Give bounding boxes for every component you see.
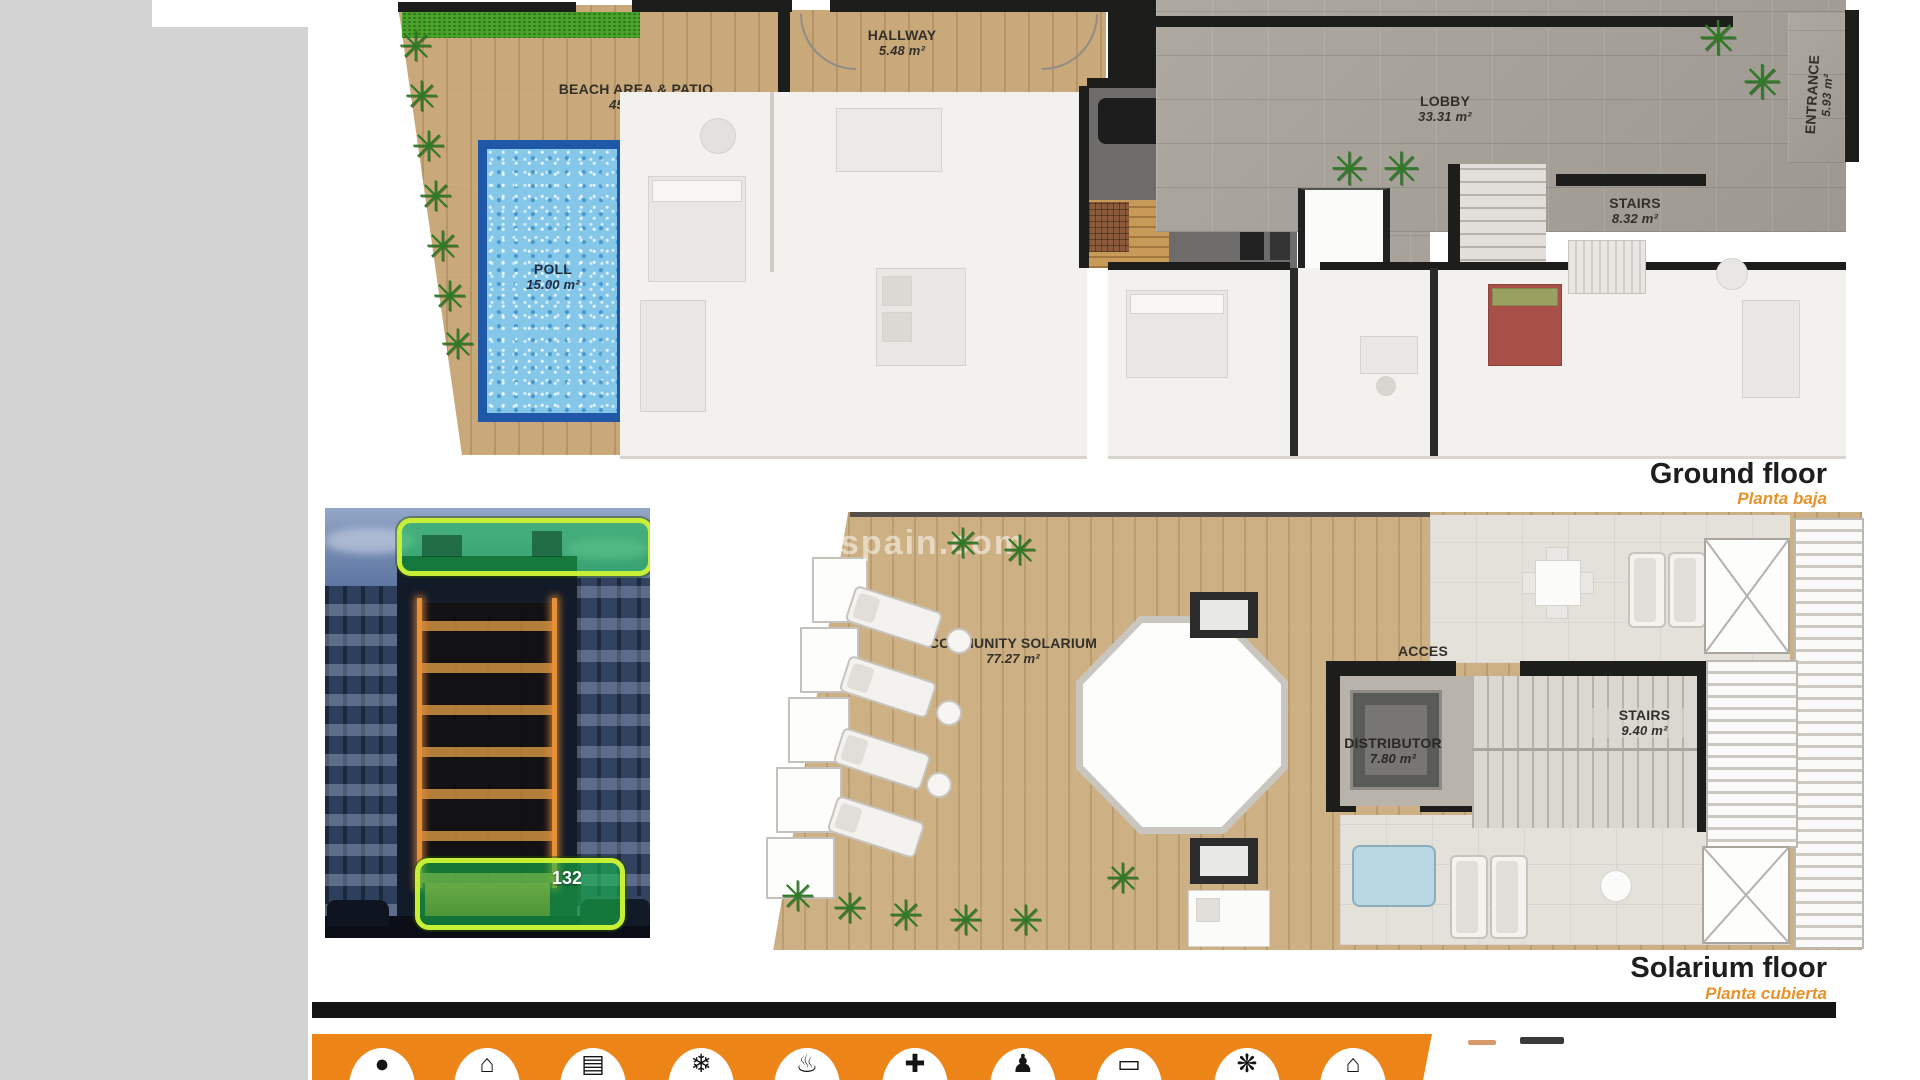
palm-plant-icon: ✳ [948,900,983,942]
palm-plant-icon: ✳ [888,895,923,937]
chair [1546,605,1568,619]
chair [1546,547,1568,561]
sun-lounger [1450,855,1488,939]
dash-mark [1468,1040,1496,1045]
palm-plant-icon: ✳ [1008,900,1043,942]
wall [1520,661,1712,676]
side-table [936,700,962,726]
room-label-acces: ACCES [1388,644,1458,660]
palm-plant-icon: ✳ [1002,530,1037,572]
vent-shaft-cover [1200,846,1248,876]
watermark: spain.com [840,524,1026,563]
table [1535,560,1581,606]
room-label-distributor: DISTRIBUTOR 7.80 m² [1328,736,1458,766]
stair-landing [1472,748,1697,751]
chair [1522,572,1536,594]
chair [1580,572,1594,594]
solarium-floor-plan: spain.com COMMUNITY SOLARIUM 77.27 m² ✳ … [0,0,1920,1080]
wall [1326,661,1456,676]
palm-plant-icon: ✳ [780,876,815,918]
round-table [1600,870,1632,902]
jacuzzi [1352,845,1436,907]
deck-edge [850,512,1430,517]
palm-plant-icon: ✳ [1105,858,1140,900]
page: ✳ ✳ ✳ ✳ ✳ ✳ ✳ BEACH AREA & PATIO 45.74 m… [0,0,1920,1080]
side-table [926,772,952,798]
vent-shaft-cover [1200,600,1248,630]
skylight-icon [1702,846,1790,944]
solarium-floor-title: Solarium floor [1427,952,1827,985]
sun-lounger [1668,552,1706,628]
pergola-slats [1706,660,1798,848]
sink [1196,898,1220,922]
staircase [1472,676,1697,828]
palm-plant-icon: ✳ [945,523,980,565]
sun-lounger [1628,552,1666,628]
sun-lounger [1490,855,1528,939]
pergola-slats [1794,518,1864,949]
divider-bar [312,1002,1836,1018]
side-table [946,628,972,654]
room-label-stairs-solarium: STAIRS 9.40 m² [1592,708,1697,738]
dash-mark [1520,1037,1564,1044]
skylight-icon [1704,538,1790,654]
solarium-floor-subtitle: Planta cubierta [1427,984,1827,1004]
palm-plant-icon: ✳ [832,888,867,930]
